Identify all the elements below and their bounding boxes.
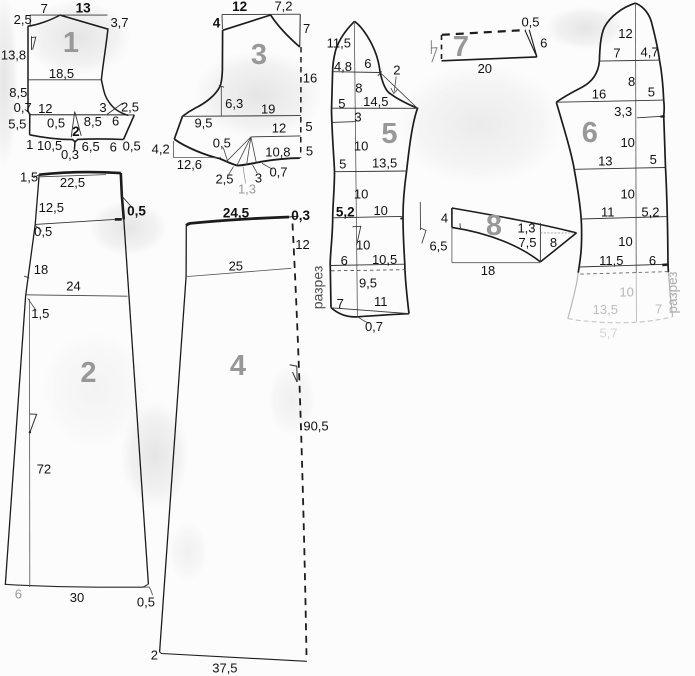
svg-text:5,5: 5,5 — [8, 116, 26, 131]
svg-text:5: 5 — [650, 152, 657, 167]
svg-text:6: 6 — [540, 36, 547, 51]
svg-text:2: 2 — [151, 648, 158, 663]
svg-text:8: 8 — [486, 210, 502, 242]
svg-text:0,7: 0,7 — [269, 164, 287, 179]
svg-text:20: 20 — [478, 61, 492, 76]
svg-text:0,5: 0,5 — [127, 203, 146, 218]
svg-text:6: 6 — [112, 114, 119, 129]
svg-text:6: 6 — [341, 253, 348, 268]
svg-text:4: 4 — [230, 350, 246, 382]
svg-text:7,2: 7,2 — [274, 0, 292, 13]
svg-text:2,5: 2,5 — [215, 171, 233, 186]
svg-text:7: 7 — [337, 296, 344, 311]
svg-text:6,5: 6,5 — [82, 139, 100, 154]
svg-text:13,8: 13,8 — [1, 48, 26, 63]
svg-text:7: 7 — [41, 1, 48, 16]
svg-text:1,5: 1,5 — [20, 170, 38, 185]
svg-text:4,2: 4,2 — [152, 141, 170, 156]
svg-text:8,5: 8,5 — [9, 85, 27, 100]
svg-text:0,7: 0,7 — [14, 100, 32, 115]
svg-text:5: 5 — [648, 84, 655, 99]
svg-text:0,5: 0,5 — [137, 595, 155, 610]
svg-text:12: 12 — [272, 121, 286, 136]
svg-text:10: 10 — [354, 186, 368, 201]
svg-text:10,8: 10,8 — [265, 144, 290, 159]
svg-text:6: 6 — [15, 587, 22, 602]
svg-text:10,5: 10,5 — [372, 252, 397, 267]
svg-text:18: 18 — [481, 263, 495, 278]
svg-text:25: 25 — [229, 259, 243, 274]
svg-text:13,5: 13,5 — [593, 302, 618, 317]
svg-text:0,5: 0,5 — [34, 224, 52, 239]
svg-text:5: 5 — [339, 156, 346, 171]
svg-text:90,5: 90,5 — [303, 419, 328, 434]
svg-text:0,5: 0,5 — [47, 115, 65, 130]
svg-text:8: 8 — [550, 235, 557, 250]
svg-text:12,5: 12,5 — [39, 200, 64, 215]
svg-text:0,5: 0,5 — [521, 15, 539, 30]
svg-text:8: 8 — [355, 80, 362, 95]
svg-text:7: 7 — [655, 302, 662, 317]
svg-text:10: 10 — [354, 139, 368, 154]
svg-text:13: 13 — [598, 154, 612, 169]
svg-text:5: 5 — [381, 118, 397, 150]
svg-text:3: 3 — [99, 100, 106, 115]
svg-text:0,3: 0,3 — [291, 208, 310, 223]
svg-text:1,3: 1,3 — [238, 181, 256, 196]
svg-text:14,5: 14,5 — [363, 94, 388, 109]
svg-text:0,3: 0,3 — [61, 147, 79, 162]
svg-text:6,5: 6,5 — [429, 239, 447, 254]
svg-text:2,5: 2,5 — [14, 12, 32, 27]
svg-text:7: 7 — [303, 21, 310, 36]
svg-text:6: 6 — [649, 253, 656, 268]
svg-text:10,5: 10,5 — [37, 138, 62, 153]
svg-text:6: 6 — [582, 117, 598, 149]
svg-text:2,5: 2,5 — [121, 100, 139, 115]
svg-text:5: 5 — [306, 143, 313, 158]
svg-text:30: 30 — [70, 590, 84, 605]
svg-text:5,7: 5,7 — [600, 325, 618, 340]
svg-text:11: 11 — [601, 205, 615, 220]
svg-text:24: 24 — [66, 279, 80, 294]
svg-text:10: 10 — [619, 284, 633, 299]
svg-text:18: 18 — [34, 262, 48, 277]
svg-text:10: 10 — [620, 187, 634, 202]
svg-text:8: 8 — [628, 74, 635, 89]
svg-text:4,7: 4,7 — [641, 45, 659, 60]
svg-text:19: 19 — [261, 102, 275, 117]
svg-text:37,5: 37,5 — [212, 660, 237, 675]
svg-text:11,5: 11,5 — [599, 253, 623, 268]
svg-text:7: 7 — [613, 46, 620, 61]
svg-text:4: 4 — [213, 15, 221, 30]
svg-text:16: 16 — [303, 71, 317, 86]
svg-text:0,5: 0,5 — [213, 135, 231, 150]
svg-text:12: 12 — [232, 0, 247, 14]
svg-text:4,8: 4,8 — [334, 59, 352, 74]
svg-text:11,5: 11,5 — [327, 36, 351, 51]
svg-text:1: 1 — [63, 27, 79, 59]
svg-text:13,5: 13,5 — [372, 156, 397, 171]
svg-text:22,5: 22,5 — [60, 175, 85, 190]
svg-text:5,2: 5,2 — [336, 205, 355, 220]
svg-text:5,2: 5,2 — [641, 205, 659, 220]
svg-text:4: 4 — [441, 210, 448, 225]
svg-text:7,5: 7,5 — [518, 235, 536, 250]
svg-text:12,6: 12,6 — [177, 157, 202, 172]
svg-text:5: 5 — [338, 96, 345, 111]
svg-text:12: 12 — [295, 237, 309, 252]
svg-text:18,5: 18,5 — [49, 66, 74, 81]
svg-text:3,7: 3,7 — [110, 15, 128, 30]
svg-text:13: 13 — [76, 1, 92, 16]
svg-text:2: 2 — [393, 63, 400, 78]
svg-text:3: 3 — [255, 170, 262, 185]
svg-text:12: 12 — [38, 101, 52, 116]
svg-text:3,3: 3,3 — [614, 104, 632, 119]
svg-text:10: 10 — [373, 203, 387, 218]
svg-text:9,5: 9,5 — [194, 115, 212, 130]
svg-text:разрез: разрез — [665, 272, 680, 314]
svg-text:разрез: разрез — [310, 266, 326, 310]
svg-text:8,5: 8,5 — [84, 114, 102, 129]
svg-text:6: 6 — [364, 56, 371, 71]
svg-text:2: 2 — [72, 124, 80, 139]
svg-text:3: 3 — [251, 39, 267, 71]
svg-text:2: 2 — [80, 357, 96, 389]
svg-text:3: 3 — [354, 109, 361, 124]
svg-text:0,5: 0,5 — [123, 138, 141, 153]
svg-text:0,7: 0,7 — [365, 319, 383, 334]
svg-text:6,3: 6,3 — [225, 96, 243, 111]
svg-text:11: 11 — [374, 294, 388, 309]
svg-text:1: 1 — [26, 137, 33, 152]
svg-text:1,5: 1,5 — [31, 306, 49, 321]
svg-text:6: 6 — [110, 140, 117, 155]
svg-text:5: 5 — [305, 119, 312, 134]
svg-text:7: 7 — [453, 31, 469, 63]
svg-text:16: 16 — [592, 86, 606, 101]
svg-text:10: 10 — [618, 234, 632, 249]
svg-text:1,3: 1,3 — [517, 220, 535, 235]
svg-text:72: 72 — [37, 462, 51, 477]
svg-text:24,5: 24,5 — [223, 205, 250, 220]
svg-text:12: 12 — [618, 26, 632, 41]
svg-text:10: 10 — [620, 135, 634, 150]
svg-text:10: 10 — [356, 237, 370, 252]
svg-text:9,5: 9,5 — [359, 276, 377, 291]
